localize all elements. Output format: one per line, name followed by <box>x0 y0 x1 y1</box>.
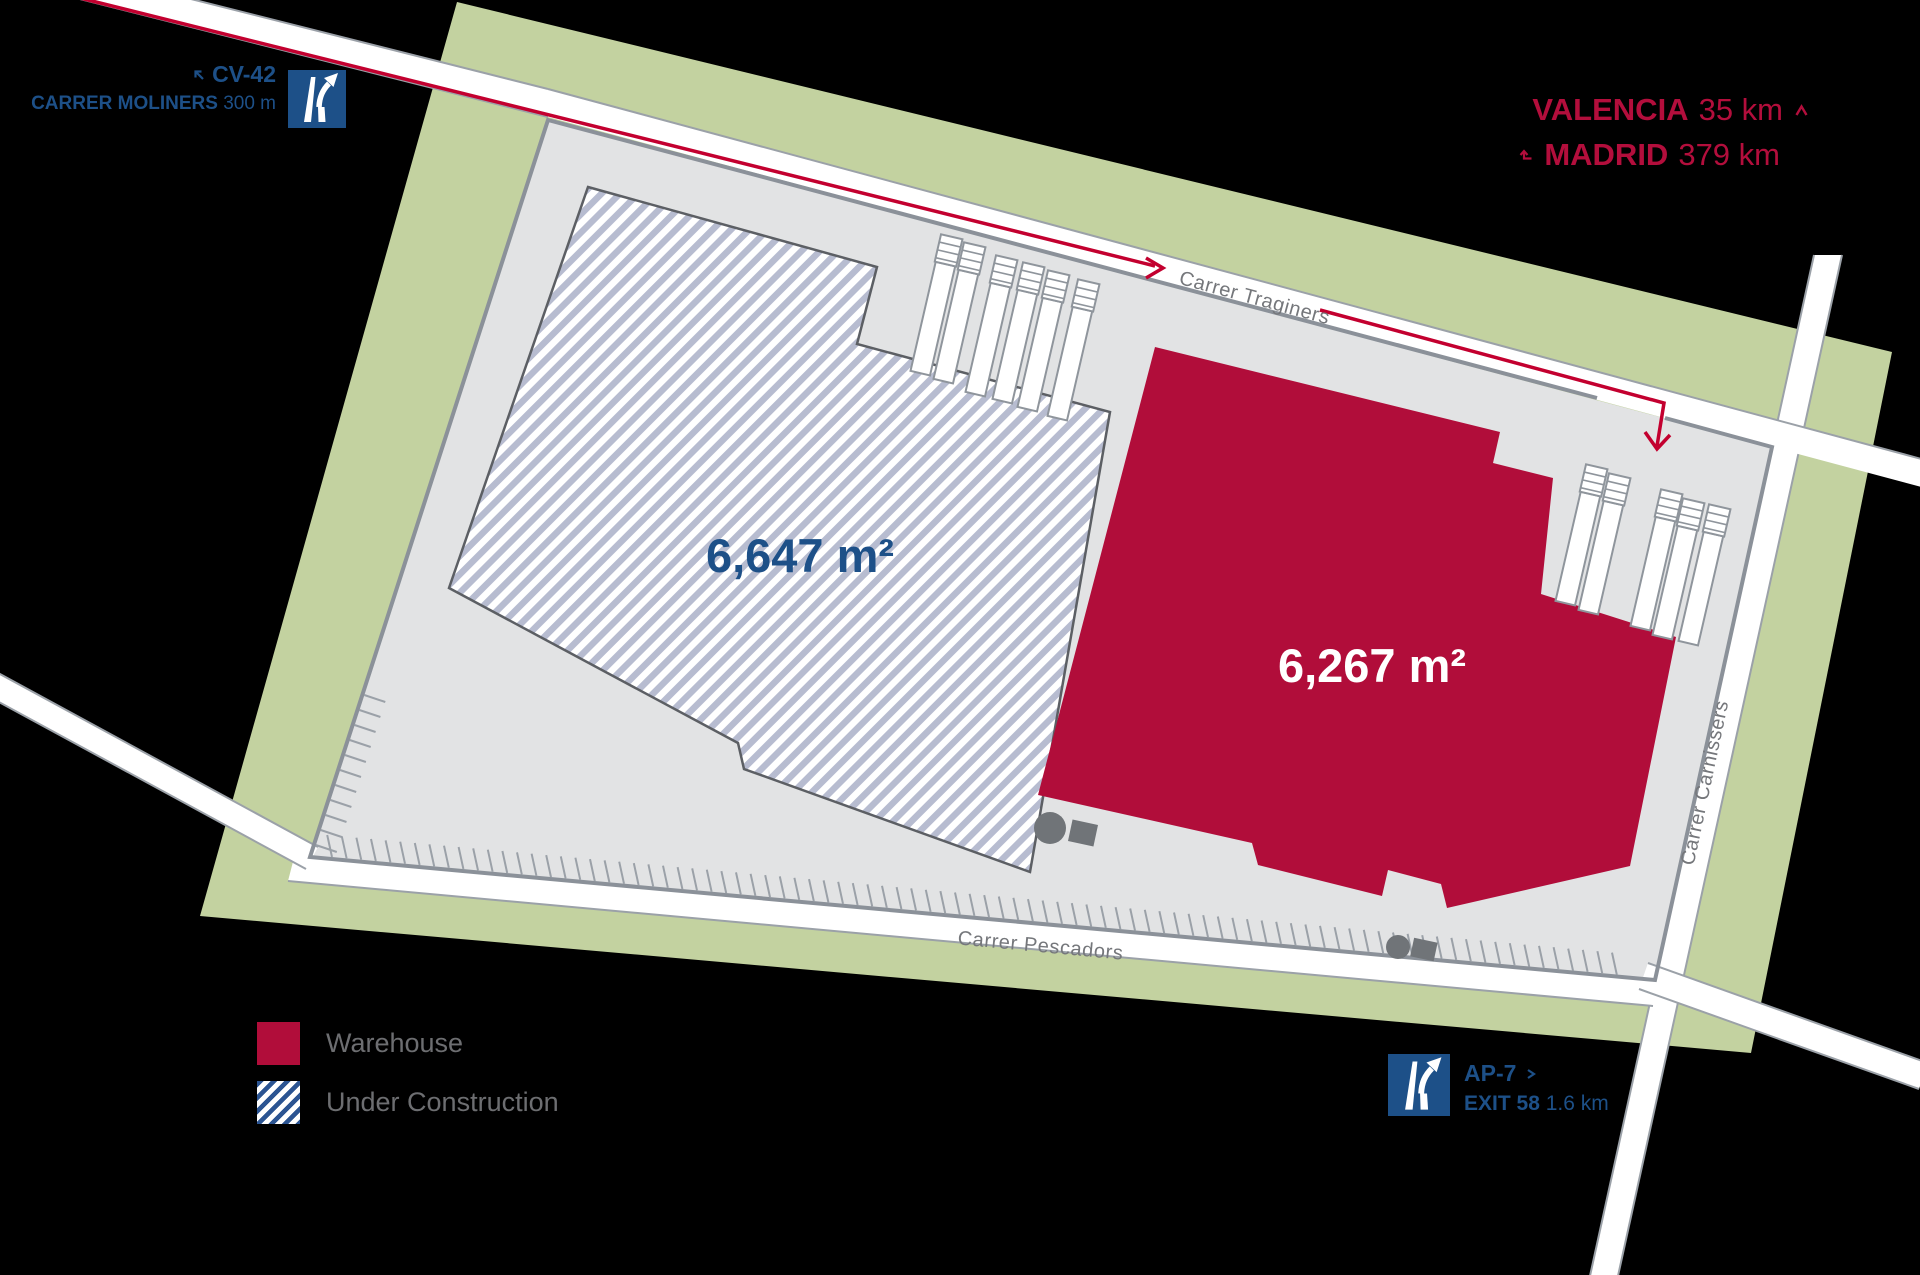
cv42-route: CV-42 <box>212 60 276 89</box>
motorway-exit-icon <box>1388 1054 1450 1116</box>
legend: Warehouse Under Construction <box>257 1022 559 1124</box>
madrid-name: MADRID <box>1544 137 1668 173</box>
legend-item-under-construction: Under Construction <box>257 1081 559 1124</box>
legend-item-warehouse: Warehouse <box>257 1022 559 1065</box>
area-label-warehouse: 6,267 m² <box>1278 639 1466 692</box>
cv42-distance: 300 m <box>223 93 276 114</box>
site-plan-map: Carrer Traginers Carrer Carnissers Carre… <box>0 0 1920 1275</box>
madrid-distance: 379 km <box>1678 137 1780 173</box>
cv42-street: CARRER MOLINERS <box>31 93 218 114</box>
legend-label: Warehouse <box>326 1028 463 1059</box>
legend-label: Under Construction <box>326 1087 559 1118</box>
up-arrow-icon <box>1793 102 1810 119</box>
ap7-access-label: AP-7 EXIT 58 1.6 km <box>1464 1060 1609 1116</box>
up-left-arrow-icon <box>1517 147 1534 164</box>
ap7-exit: EXIT 58 <box>1464 1092 1540 1115</box>
up-left-arrow-icon <box>191 67 205 81</box>
motorway-exit-icon <box>288 70 346 128</box>
ap7-distance: 1.6 km <box>1546 1092 1609 1115</box>
ap7-route: AP-7 <box>1464 1060 1516 1088</box>
valencia-distance: 35 km <box>1699 92 1783 128</box>
under-construction-swatch <box>257 1081 300 1124</box>
right-arrow-icon <box>1524 1067 1537 1081</box>
warehouse-swatch <box>257 1022 300 1065</box>
madrid-distance-label: MADRID 379 km <box>1440 137 1780 173</box>
cv42-access-label: CV-42 CARRER MOLINERS 300 m <box>28 60 276 116</box>
valencia-distance-label: VALENCIA 35 km <box>1450 92 1810 128</box>
valencia-name: VALENCIA <box>1532 92 1688 128</box>
area-label-under-construction: 6,647 m² <box>706 529 894 582</box>
